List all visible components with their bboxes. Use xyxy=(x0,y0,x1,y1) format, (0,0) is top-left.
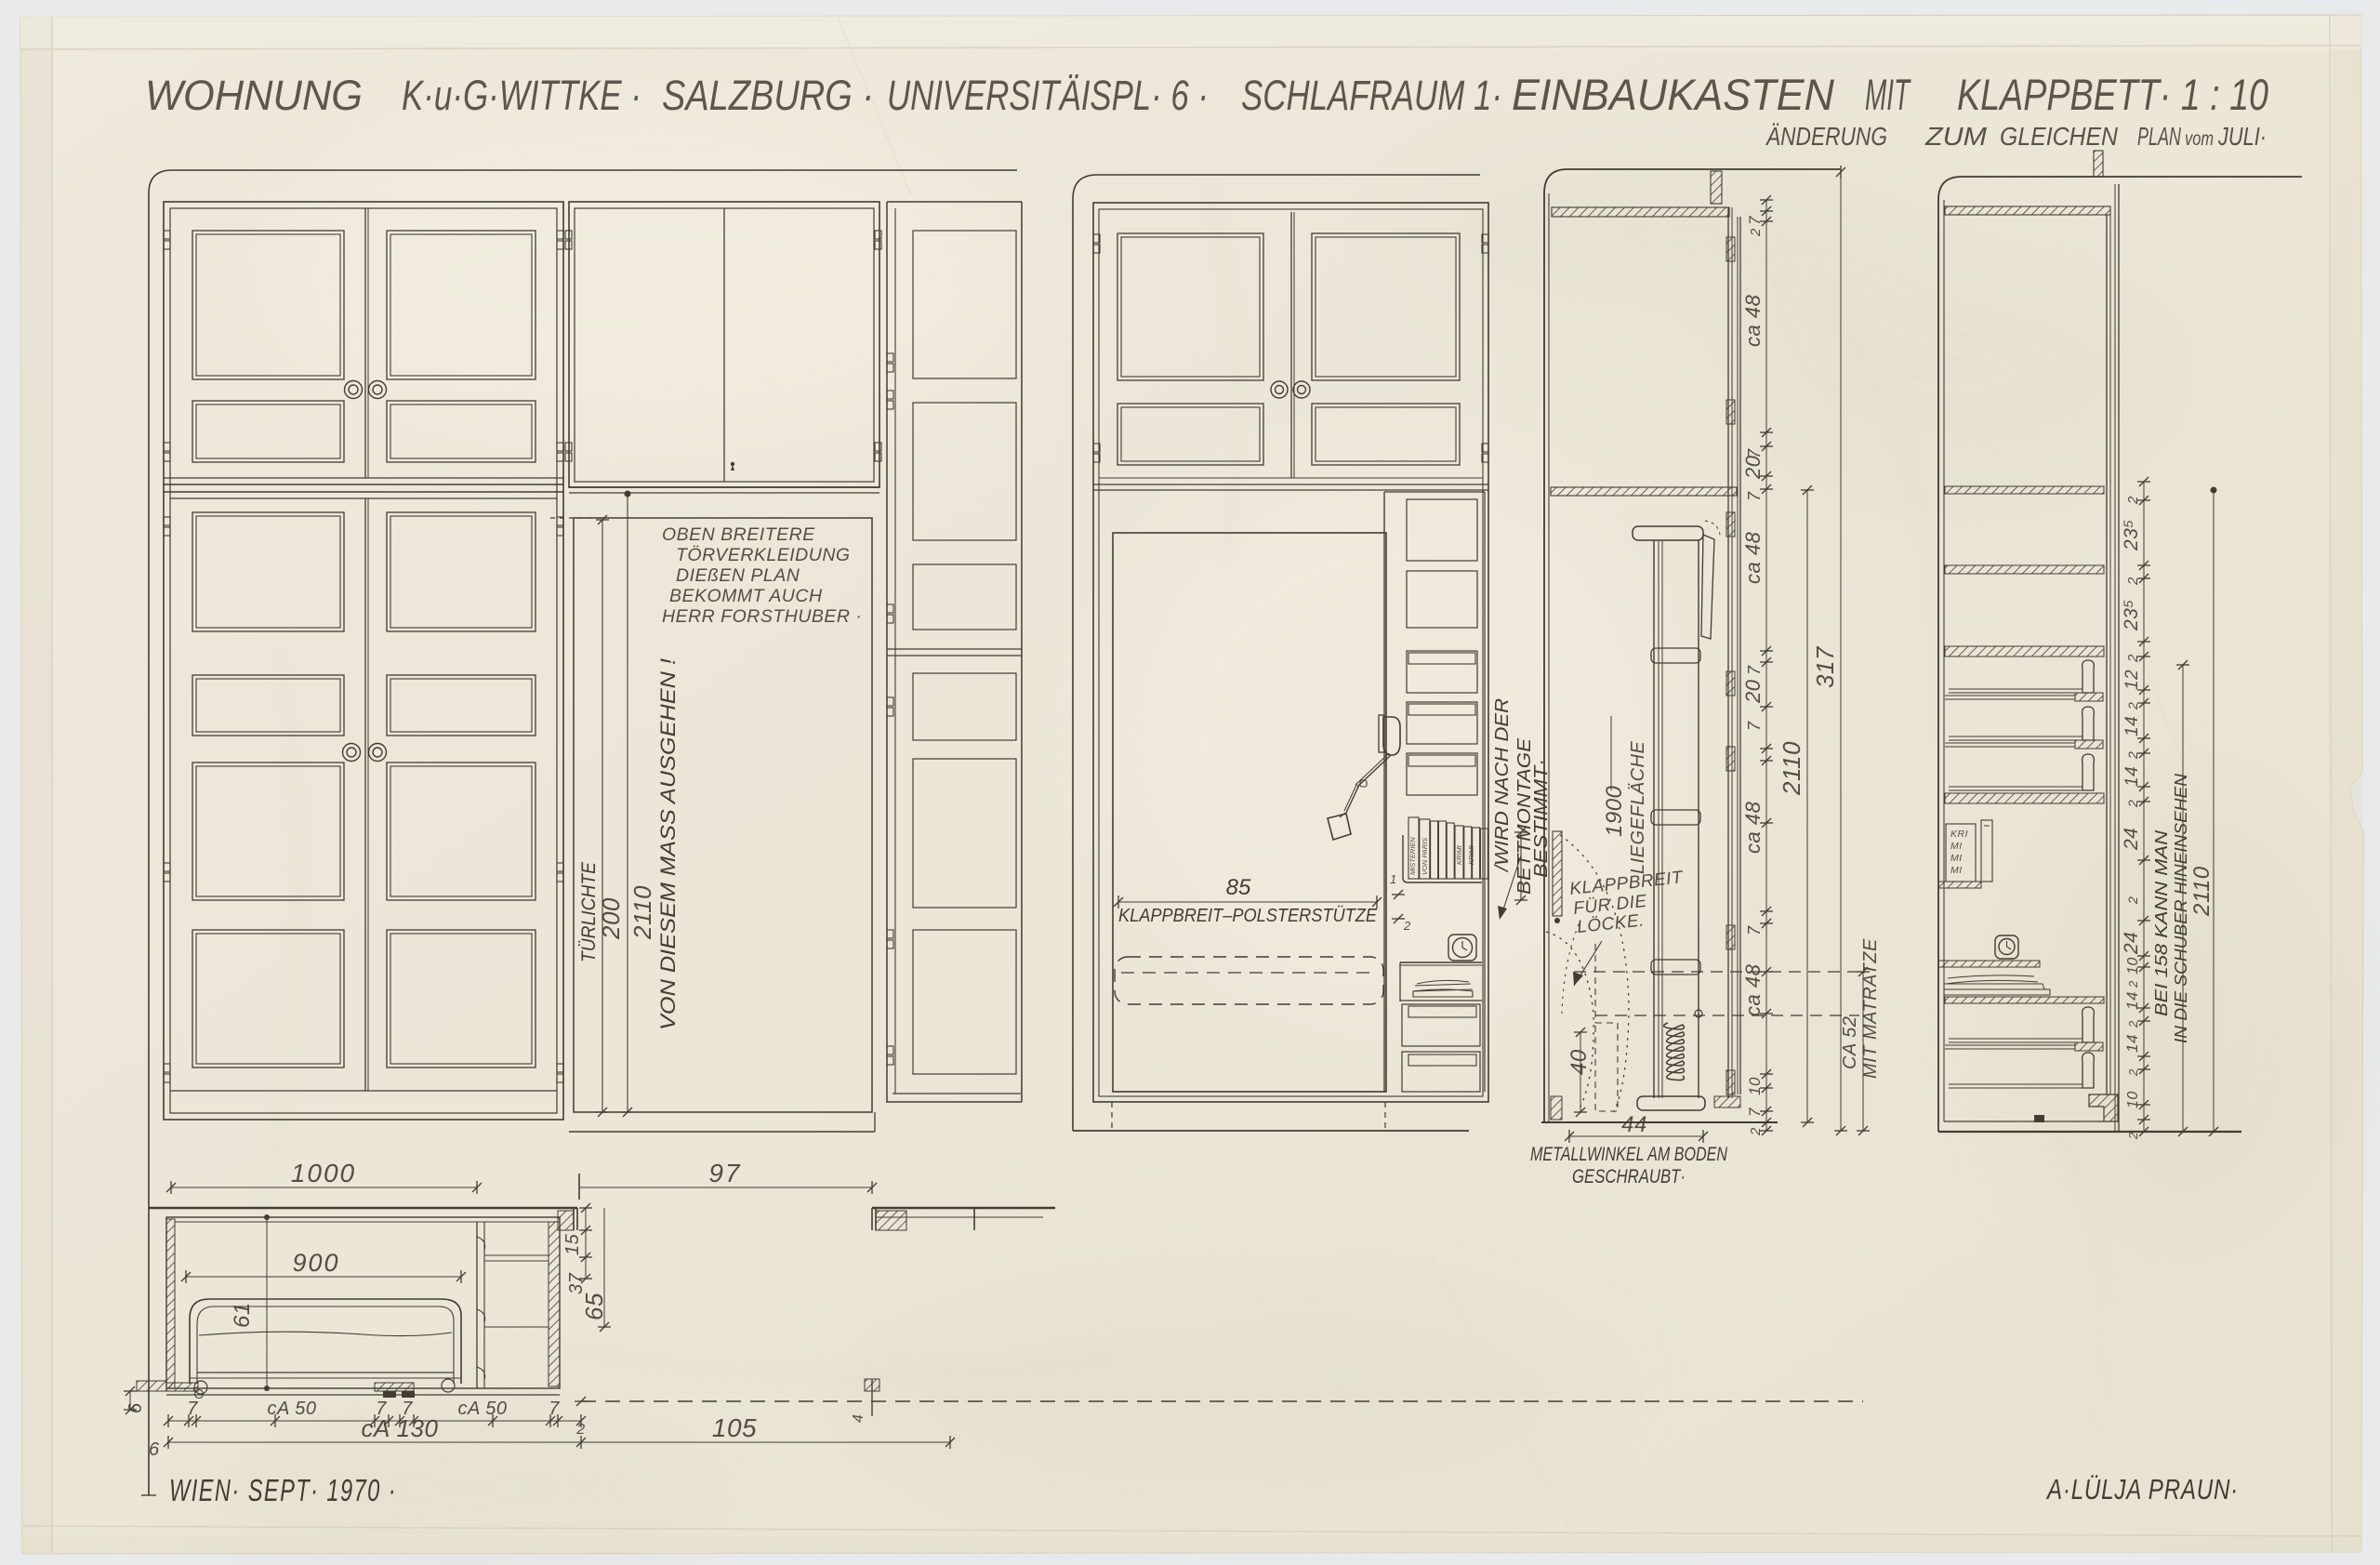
svg-text:7: 7 xyxy=(1745,665,1764,675)
svg-text:MIT: MIT xyxy=(1865,70,1911,119)
svg-text:7: 7 xyxy=(1745,491,1764,501)
svg-text:HERR FORSTHUBER ·: HERR FORSTHUBER · xyxy=(662,606,862,627)
svg-text:GLEICHEN: GLEICHEN xyxy=(2000,122,2119,151)
svg-text:24: 24 xyxy=(2121,932,2142,955)
svg-text:ca 48: ca 48 xyxy=(1741,801,1765,854)
svg-text:85: 85 xyxy=(1226,875,1251,900)
svg-text:MI: MI xyxy=(1950,865,1963,876)
svg-text:2: 2 xyxy=(2125,577,2141,586)
svg-text:7: 7 xyxy=(549,1399,560,1419)
svg-text:ÄNDERUNG: ÄNDERUNG xyxy=(1765,122,1887,151)
svg-text:MI: MI xyxy=(1950,853,1963,864)
svg-text:MISTERIEN: MISTERIEN xyxy=(1408,837,1417,875)
svg-text:cA 50: cA 50 xyxy=(458,1399,508,1419)
svg-text:7: 7 xyxy=(1746,216,1764,225)
svg-text:23⁵: 23⁵ xyxy=(2121,599,2142,631)
svg-text:cA 50: cA 50 xyxy=(268,1399,317,1419)
svg-text:KLAPPBETT· 1 : 10: KLAPPBETT· 1 : 10 xyxy=(1957,70,2268,119)
svg-text:2: 2 xyxy=(2125,800,2140,808)
svg-text:BEI 158 KANN MAN: BEI 158 KANN MAN xyxy=(2151,829,2171,1016)
svg-text:MI: MI xyxy=(1950,841,1963,852)
svg-text:IN DIE SCHUBER HINEINSEHEN: IN DIE SCHUBER HINEINSEHEN xyxy=(2171,773,2190,1043)
svg-text:2: 2 xyxy=(2126,980,2140,988)
svg-text:2110: 2110 xyxy=(1778,741,1805,796)
svg-text:10: 10 xyxy=(2125,957,2141,975)
svg-text:GESCHRAUBT·: GESCHRAUBT· xyxy=(1572,1166,1686,1187)
svg-text:OBEN BREITERE: OBEN BREITERE xyxy=(662,524,815,545)
svg-text:MIT MATRATZE: MIT MATRATZE xyxy=(1860,938,1881,1079)
svg-text:2: 2 xyxy=(1403,919,1411,933)
svg-text:JULI·: JULI· xyxy=(2217,122,2267,151)
svg-text:1: 1 xyxy=(1390,872,1397,886)
svg-text:2: 2 xyxy=(2126,1068,2140,1077)
svg-text:WIEN· SEPT· 1970 ·: WIEN· SEPT· 1970 · xyxy=(169,1473,397,1507)
svg-text:6: 6 xyxy=(149,1439,160,1460)
svg-text:40: 40 xyxy=(1567,1049,1592,1075)
svg-text:65: 65 xyxy=(580,1293,608,1320)
svg-text:CA 52: CA 52 xyxy=(1840,1016,1860,1069)
svg-text:TÖRVERKLEIDUNG: TÖRVERKLEIDUNG xyxy=(676,545,851,565)
svg-text:10: 10 xyxy=(2125,1091,2141,1108)
svg-text:2: 2 xyxy=(2125,496,2141,505)
svg-text:KLAPPBREIT–POLSTERSTÜTZE: KLAPPBREIT–POLSTERSTÜTZE xyxy=(1118,906,1378,926)
svg-text:KRIMI: KRIMI xyxy=(1467,845,1475,865)
svg-text:14: 14 xyxy=(2122,716,2142,736)
svg-text:97: 97 xyxy=(708,1159,741,1187)
svg-text:15: 15 xyxy=(562,1233,583,1255)
svg-text:UNIVERSITÄISPL· 6 ·: UNIVERSITÄISPL· 6 · xyxy=(887,72,1209,119)
svg-text:KRI: KRI xyxy=(1950,829,1968,840)
svg-text:METALLWINKEL AM BODEN: METALLWINKEL AM BODEN xyxy=(1530,1144,1728,1165)
svg-text:7: 7 xyxy=(1745,721,1764,731)
svg-text:4: 4 xyxy=(851,1414,866,1423)
svg-text:1900: 1900 xyxy=(1602,785,1627,837)
svg-text:44: 44 xyxy=(1621,1112,1647,1137)
svg-text:2: 2 xyxy=(2125,654,2141,663)
svg-text:7: 7 xyxy=(187,1399,198,1419)
svg-text:12: 12 xyxy=(2122,670,2142,690)
svg-text:2: 2 xyxy=(2125,896,2140,905)
svg-text:EINBAUKASTEN: EINBAUKASTEN xyxy=(1512,70,1834,119)
svg-text:/WIRD NACH DER: /WIRD NACH DER xyxy=(1492,698,1513,873)
svg-text:2110: 2110 xyxy=(628,885,656,940)
svg-text:DIEßEN PLAN: DIEßEN PLAN xyxy=(676,565,800,586)
svg-text:2: 2 xyxy=(2125,702,2140,710)
svg-text:37: 37 xyxy=(566,1272,587,1294)
svg-text:ZUM: ZUM xyxy=(1924,122,1988,151)
svg-text:61: 61 xyxy=(230,1302,255,1328)
svg-text:10: 10 xyxy=(1746,1077,1764,1095)
svg-text:KRIMI: KRIMI xyxy=(1455,845,1463,865)
svg-text:K·u·G·WITTKE ·: K·u·G·WITTKE · xyxy=(402,72,641,119)
svg-text:LIEGEFLÄCHE: LIEGEFLÄCHE xyxy=(1628,741,1648,874)
svg-text:ca 48: ca 48 xyxy=(1741,531,1765,584)
svg-text:105: 105 xyxy=(712,1413,757,1442)
svg-text:VON PARIS: VON PARIS xyxy=(1421,838,1429,875)
svg-text:PLAN: PLAN xyxy=(2137,122,2181,151)
svg-text:14: 14 xyxy=(2122,766,2142,787)
svg-text:1000: 1000 xyxy=(291,1159,356,1187)
svg-text:2: 2 xyxy=(2126,1132,2140,1140)
svg-text:23⁵: 23⁵ xyxy=(2121,519,2142,551)
svg-text:VON DIESEM MASS AUSGEHEN !: VON DIESEM MASS AUSGEHEN ! xyxy=(656,658,680,1030)
svg-text:2: 2 xyxy=(1748,228,1764,237)
svg-text:BEKOMMT AUCH: BEKOMMT AUCH xyxy=(669,586,823,606)
svg-text:A·LÜLJA PRAUN·: A·LÜLJA PRAUN· xyxy=(2045,1473,2239,1505)
svg-text:14: 14 xyxy=(2123,991,2141,1010)
svg-text:14: 14 xyxy=(2123,1034,2141,1053)
svg-text:900: 900 xyxy=(292,1249,339,1277)
svg-text:2110: 2110 xyxy=(2189,866,2215,917)
svg-text:ca 48: ca 48 xyxy=(1741,963,1765,1016)
svg-text:7: 7 xyxy=(1745,925,1764,935)
svg-text:SALZBURG ·: SALZBURG · xyxy=(662,72,874,119)
svg-text:20: 20 xyxy=(1741,679,1765,704)
svg-text:2: 2 xyxy=(1748,1127,1764,1136)
svg-text:2: 2 xyxy=(2126,1020,2140,1028)
svg-text:317: 317 xyxy=(1811,645,1839,688)
svg-text:cA 130: cA 130 xyxy=(362,1414,439,1442)
svg-text:2: 2 xyxy=(2125,751,2140,760)
svg-text:SCHLAFRAUM 1·: SCHLAFRAUM 1· xyxy=(1241,72,1502,119)
svg-text:24: 24 xyxy=(2121,828,2142,851)
svg-text:20: 20 xyxy=(1741,455,1765,480)
svg-text:vom: vom xyxy=(2185,128,2214,150)
svg-text:7: 7 xyxy=(1746,1107,1764,1117)
svg-text:2: 2 xyxy=(575,1422,585,1438)
svg-text:200: 200 xyxy=(597,897,625,940)
svg-text:ca 48: ca 48 xyxy=(1741,294,1765,347)
svg-text:WOHNUNG: WOHNUNG xyxy=(145,72,363,119)
